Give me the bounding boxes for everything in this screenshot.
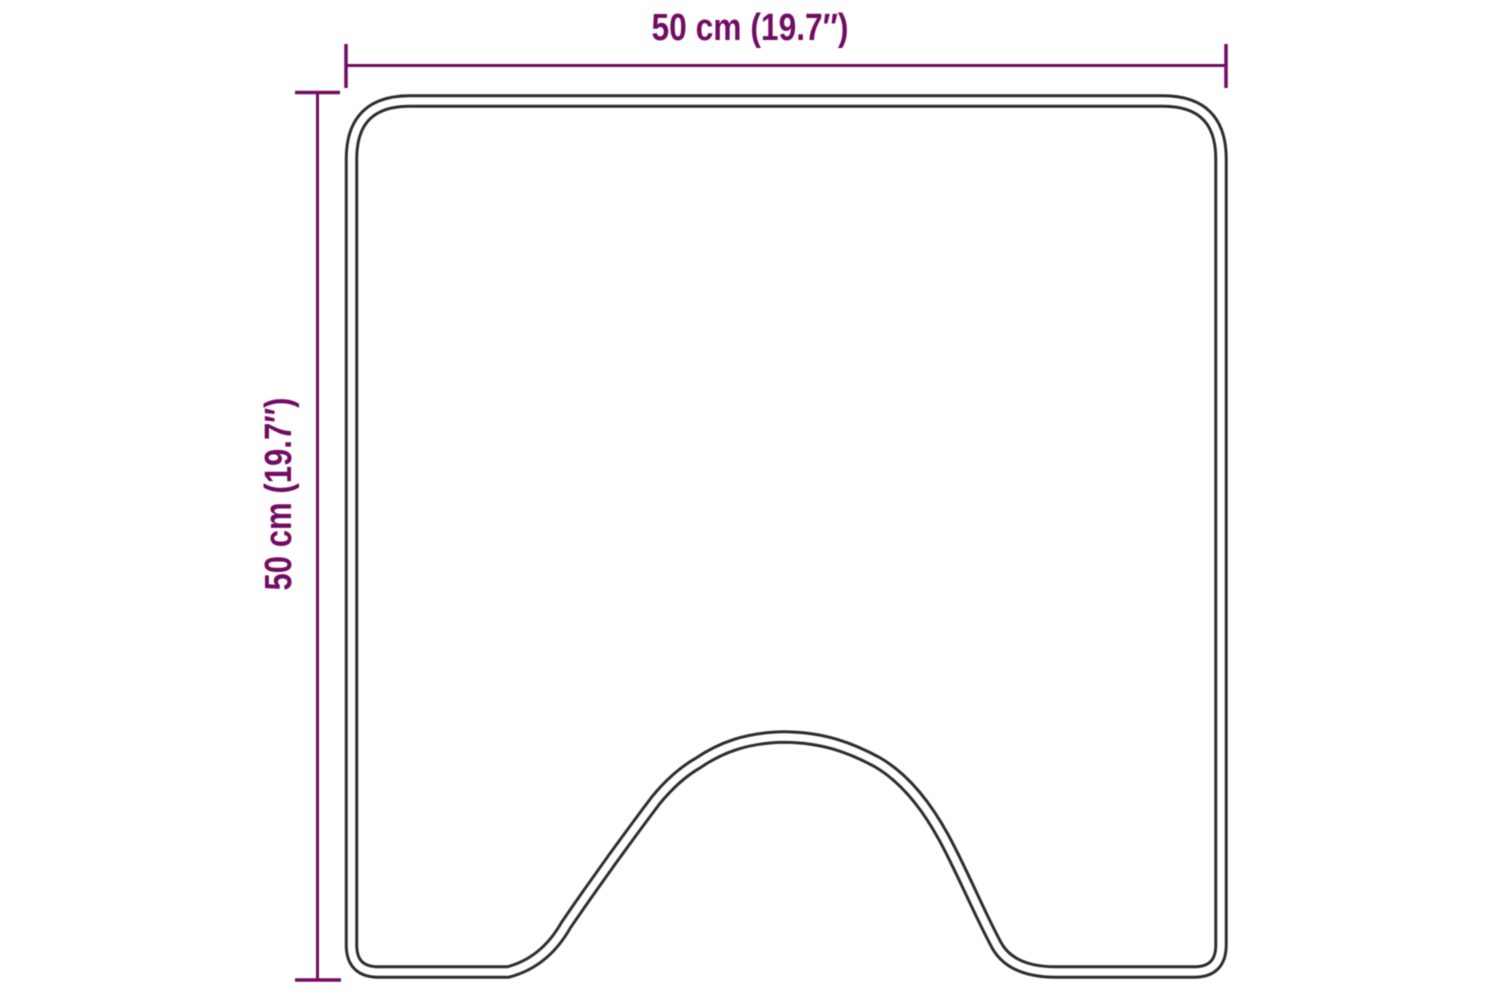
svg-text:50 cm (19.7″): 50 cm (19.7″) xyxy=(258,398,300,591)
svg-text:50 cm (19.7″): 50 cm (19.7″) xyxy=(652,7,849,49)
